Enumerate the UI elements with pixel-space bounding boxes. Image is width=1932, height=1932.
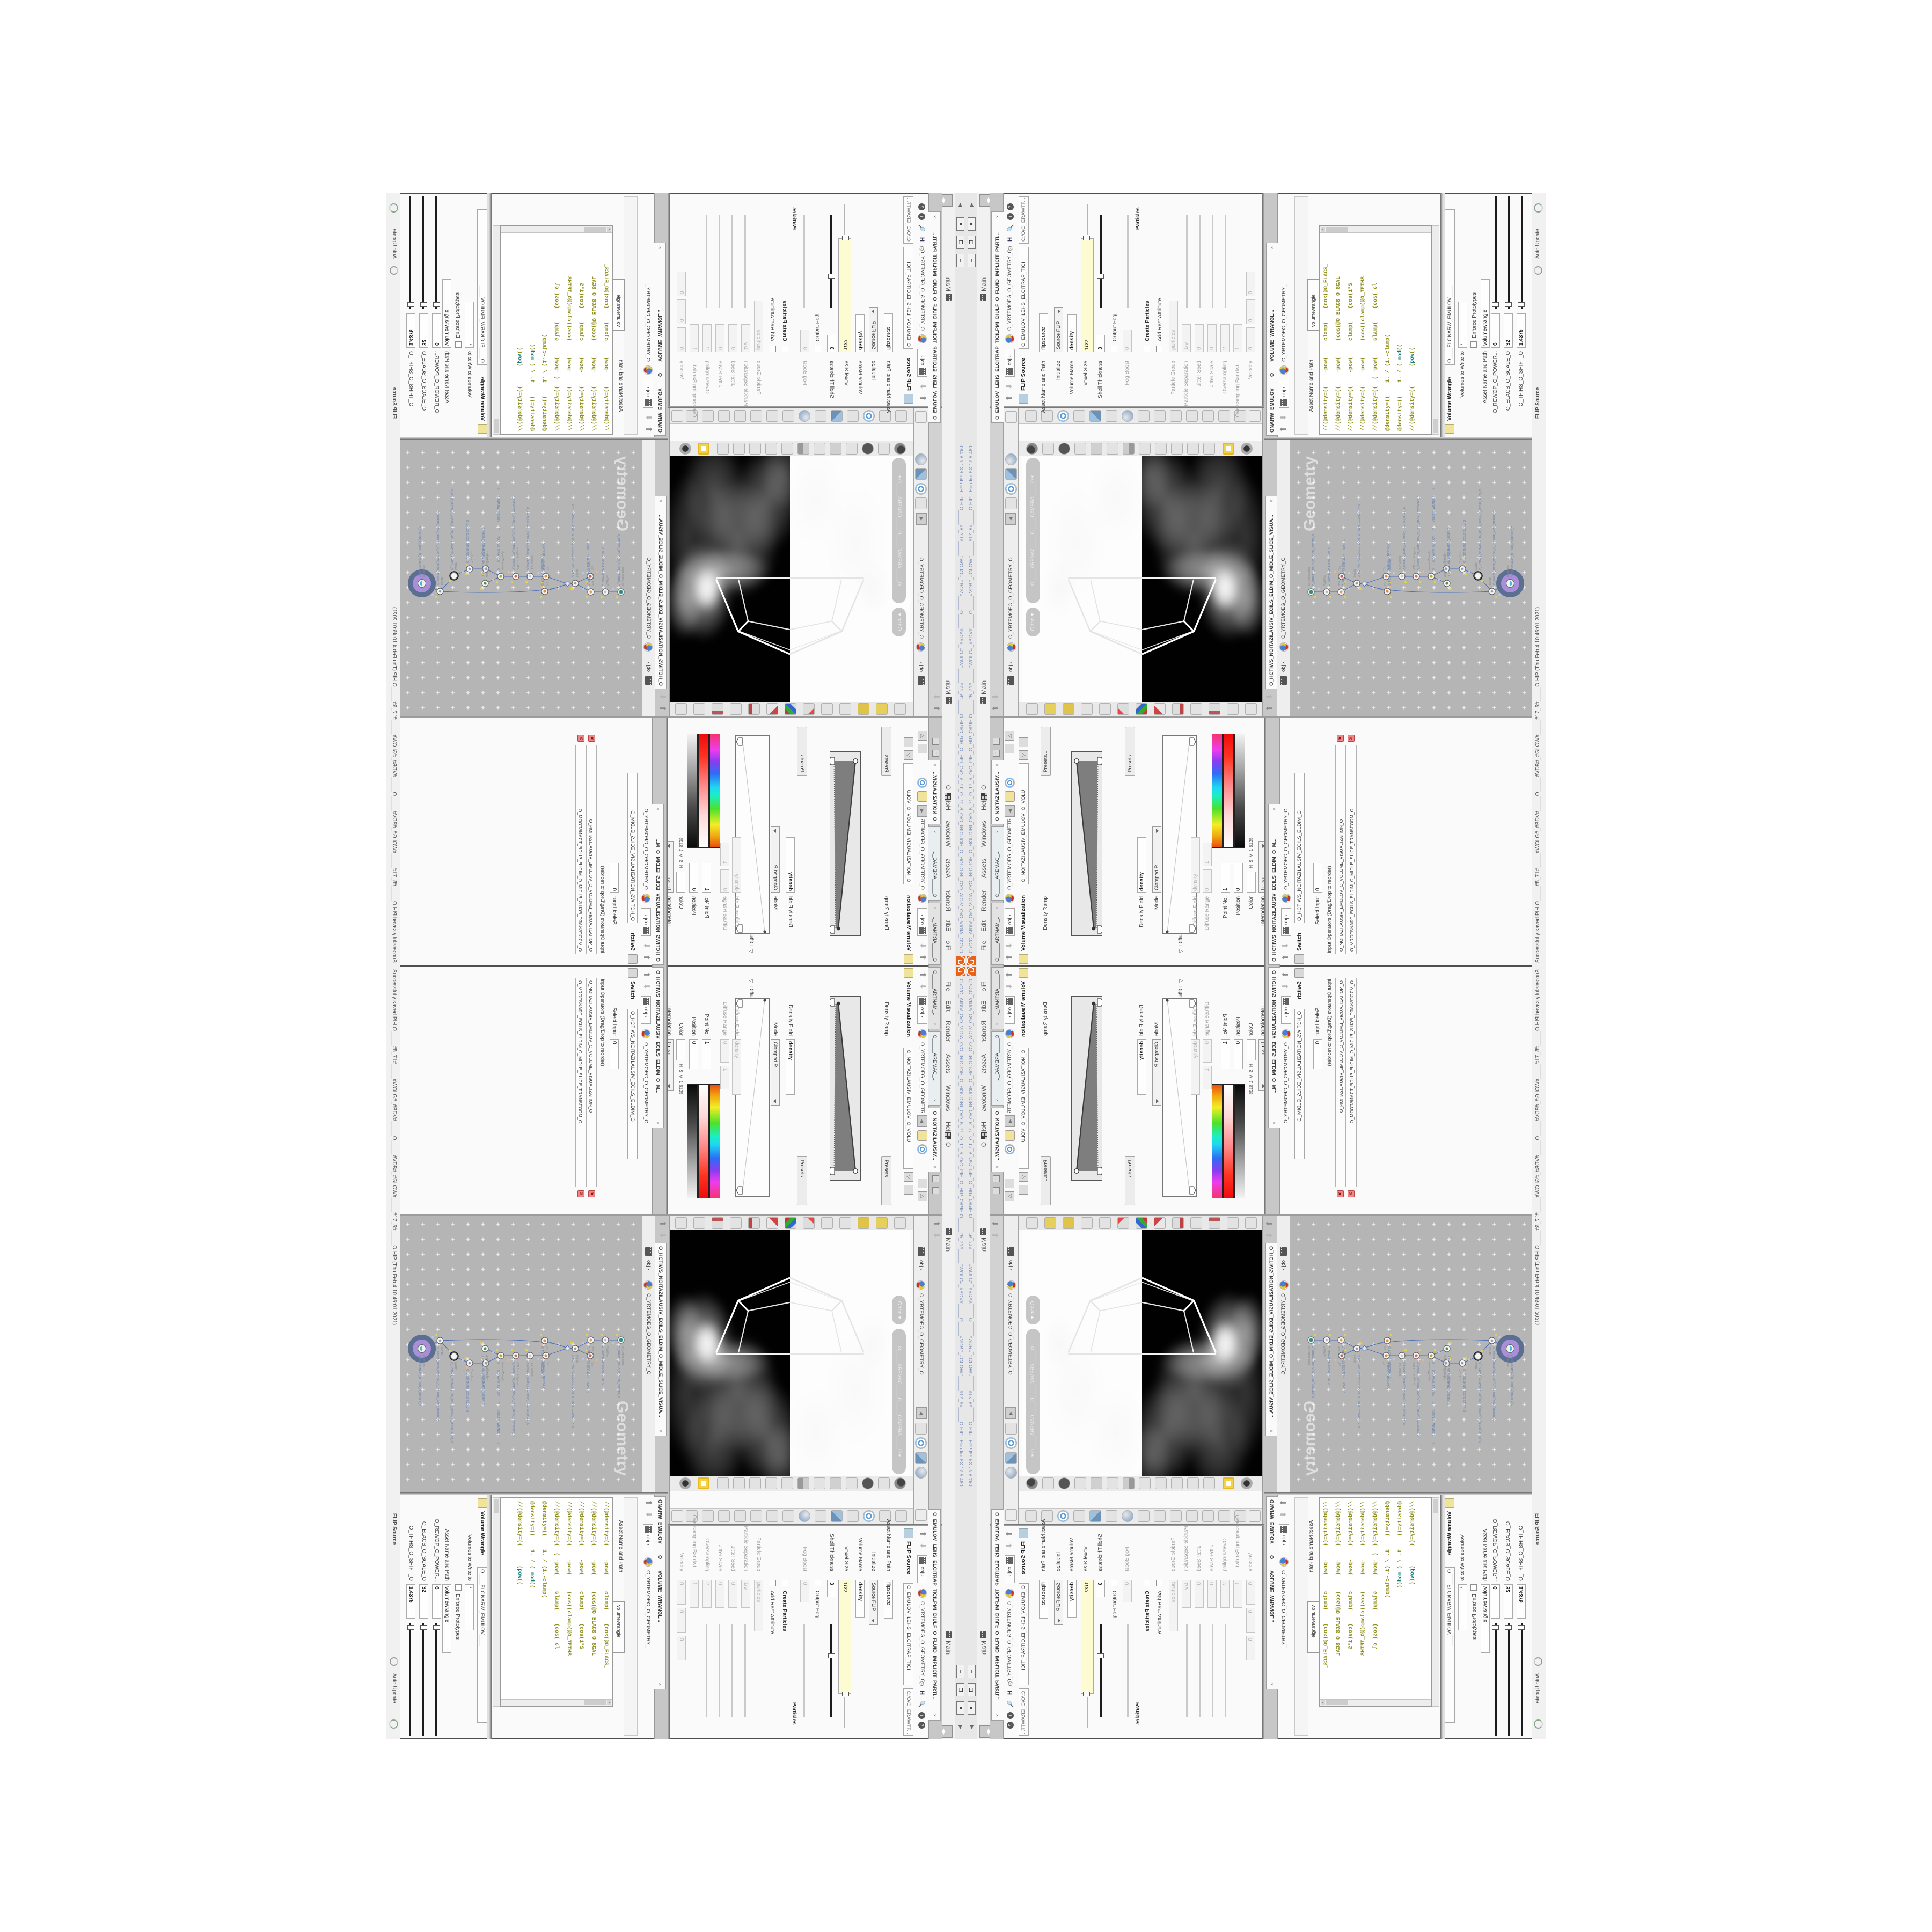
svg-text:Volume Wrangle: Volume Wrangle bbox=[501, 1362, 504, 1381]
svg-text:O_HCTIWS_NOITAZILAUSIV_ECILS_E: O_HCTIWS_NOITAZILAUSIV_ECILS_ELDIM_O_MID… bbox=[1479, 1362, 1482, 1443]
svg-text:Volume Wrangle: Volume Wrangle bbox=[1428, 551, 1431, 570]
svg-text:O_ERIWYLOP_EMARFERIW_O: O_ERIWYLOP_EMARFERIW_O bbox=[1328, 1346, 1331, 1385]
svg-text:O_MROFSNART_TLUSER_O_RESULT_O: O_MROFSNART_TLUSER_O_RESULT_O bbox=[1511, 526, 1514, 577]
svg-text:O_ELIF_BDV_TROPMI_O: O_ELIF_BDV_TROPMI_O bbox=[586, 539, 589, 570]
svg-text:O_PILC_LANRETNI_O: O_PILC_LANRETNI_O bbox=[1387, 1362, 1391, 1389]
svg-text:O_HCTIWS_YRTEMOEG_LANIF_O_FINA: O_HCTIWS_YRTEMOEG_LANIF_O_FINAL_GEOMETRY… bbox=[571, 1355, 574, 1428]
svg-text:Transform: Transform bbox=[1443, 551, 1446, 563]
svg-text:O_PILC_LANRETNI_O: O_PILC_LANRETNI_O bbox=[1387, 543, 1391, 570]
svg-text:File: File bbox=[590, 1362, 594, 1366]
svg-text:O_MROFSNART_ECILS_ELDIM_O: O_MROFSNART_ECILS_ELDIM_O bbox=[465, 1369, 469, 1412]
svg-text:O_EGREM_HTIW_EMULOV_O_VOLUME_W: O_EGREM_HTIW_EMULOV_O_VOLUME_WITH_MERGE_… bbox=[436, 1347, 439, 1421]
svg-text:Transform: Transform bbox=[470, 551, 473, 563]
svg-text:an_CubeSphere: an_CubeSphere bbox=[1308, 1346, 1311, 1366]
svg-text:Clip: Clip bbox=[545, 1346, 548, 1351]
svg-text:Switch: Switch bbox=[1353, 1355, 1357, 1363]
svg-text:O_ELIF_BDV_TROPMI_O: O_ELIF_BDV_TROPMI_O bbox=[1343, 539, 1346, 570]
svg-text:Transform: Transform bbox=[1459, 551, 1462, 563]
svg-text:VDB from Polygons: VDB from Polygons bbox=[516, 547, 519, 570]
svg-text:Volume Wrangle: Volume Wrangle bbox=[1428, 1362, 1431, 1381]
svg-text:BoolTray: BoolTray bbox=[1338, 575, 1341, 586]
svg-text:FLIP Source: FLIP Source bbox=[1399, 555, 1402, 570]
svg-text:O_SNOGYLOP_MORF_BDV_O_VDB_FROM: O_SNOGYLOP_MORF_BDV_O_VDB_FROM_POLYGONS_… bbox=[1417, 1362, 1421, 1437]
svg-text:Transform: Transform bbox=[1459, 1369, 1462, 1381]
svg-text:PolyWire: PolyWire bbox=[1323, 1346, 1327, 1357]
svg-text:Merge: Merge bbox=[1489, 577, 1492, 585]
svg-text:Merge: Merge bbox=[1489, 1347, 1492, 1355]
svg-text:VDB from Polygons: VDB from Polygons bbox=[1413, 1362, 1416, 1385]
svg-text:O_EMULOV_LEHS_ELCITRAP_TICILPM: O_EMULOV_LEHS_ELCITRAP_TICILPMI_DIULF_O bbox=[1403, 1362, 1406, 1425]
svg-text:O_MROFSNART_TLUSER_O: O_MROFSNART_TLUSER_O bbox=[481, 1369, 485, 1406]
svg-text:O_PILC_LANRETNI_O: O_PILC_LANRETNI_O bbox=[541, 1362, 545, 1389]
svg-text:O_MROFSNART_TLUSER_O_RESULT_O: O_MROFSNART_TLUSER_O_RESULT_O bbox=[1511, 1355, 1514, 1406]
svg-text:Clip: Clip bbox=[1384, 1346, 1387, 1351]
svg-text:O_ERIWYLOP_EMARFERIW_O: O_ERIWYLOP_EMARFERIW_O bbox=[601, 547, 604, 586]
svg-text:PolyWire: PolyWire bbox=[1323, 575, 1327, 586]
svg-text:File: File bbox=[1338, 1362, 1342, 1366]
svg-text:BoolTray: BoolTray bbox=[591, 1346, 594, 1357]
svg-text:Switch: Switch bbox=[1353, 569, 1357, 577]
svg-text:O_ERIWYLOP_EMARFERIW_O: O_ERIWYLOP_EMARFERIW_O bbox=[601, 1346, 604, 1385]
svg-text:Clip: Clip bbox=[1383, 1362, 1386, 1366]
svg-text:O_ELIF_BDV_TROPMI_O: O_ELIF_BDV_TROPMI_O bbox=[586, 1362, 589, 1393]
svg-text:Merge: Merge bbox=[440, 577, 443, 585]
svg-text:O____ELGNARW_EMULOV____O____VO: O____ELGNARW_EMULOV____O____VOLUME_WRANG… bbox=[1432, 1362, 1436, 1445]
svg-text:PolyWire: PolyWire bbox=[605, 575, 609, 586]
svg-text:VDB from Polygons: VDB from Polygons bbox=[1413, 547, 1416, 570]
svg-text:O_MROFSNART_TLUSER_O: O_MROFSNART_TLUSER_O bbox=[1447, 1369, 1451, 1406]
svg-text:O_EREHPS_EBUC_O_CUBE_SPHERE_O: O_EREHPS_EBUC_O_CUBE_SPHERE_O bbox=[1312, 534, 1315, 586]
svg-text:Clip: Clip bbox=[546, 566, 549, 570]
svg-text:O_HCTIWS_YRTEMOEG_LANIF_O_FINA: O_HCTIWS_YRTEMOEG_LANIF_O_FINAL_GEOMETRY… bbox=[571, 504, 574, 577]
svg-text:O_ELIF_BDV_TROPMI_O: O_ELIF_BDV_TROPMI_O bbox=[1343, 1362, 1346, 1393]
svg-text:an_CubeSphere: an_CubeSphere bbox=[1308, 566, 1311, 586]
svg-text:O_EMULOV_LEHS_ELCITRAP_TICILPM: O_EMULOV_LEHS_ELCITRAP_TICILPMI_DIULF_O bbox=[1403, 507, 1406, 570]
svg-text:an_CubeSphere: an_CubeSphere bbox=[621, 566, 624, 586]
svg-text:O_EGREM_HTIW_EMULOV_O_VOLUME_W: O_EGREM_HTIW_EMULOV_O_VOLUME_WITH_MERGE_… bbox=[436, 511, 439, 585]
svg-text:File: File bbox=[590, 566, 594, 570]
svg-text:O_HCTIWS_YRTEMOEG_LANIF_O_FINA: O_HCTIWS_YRTEMOEG_LANIF_O_FINAL_GEOMETRY… bbox=[1358, 1355, 1361, 1428]
svg-text:O_EGREM_HTIW_EMULOV_O_VOLUME_W: O_EGREM_HTIW_EMULOV_O_VOLUME_WITH_MERGE_… bbox=[1493, 511, 1496, 585]
svg-text:O_MROFSNART_ECILS_ELDIM_O: O_MROFSNART_ECILS_ELDIM_O bbox=[465, 520, 469, 563]
svg-text:O_MROFSNART_TLUSER_O_RESULT_O: O_MROFSNART_TLUSER_O_RESULT_O bbox=[418, 1355, 421, 1406]
svg-text:Transform: Transform bbox=[486, 551, 489, 563]
svg-text:O_HCTIWS_NOITAZILAUSIV_ECILS_E: O_HCTIWS_NOITAZILAUSIV_ECILS_ELDIM_O_MID… bbox=[1479, 489, 1482, 570]
svg-text:Transform: Transform bbox=[470, 1369, 473, 1381]
svg-text:BoolTray: BoolTray bbox=[1338, 1346, 1341, 1357]
svg-text:O_EMULOV_LEHS_ELCITRAP_TICILPM: O_EMULOV_LEHS_ELCITRAP_TICILPMI_DIULF_O bbox=[526, 1362, 529, 1425]
svg-text:PolyWire: PolyWire bbox=[605, 1346, 609, 1357]
svg-text:Clip: Clip bbox=[545, 581, 548, 586]
svg-text:O_EREHPS_EBUC_O_CUBE_SPHERE_O: O_EREHPS_EBUC_O_CUBE_SPHERE_O bbox=[1312, 1346, 1315, 1398]
svg-text:Transform: Transform bbox=[1507, 1355, 1510, 1367]
svg-text:O_EREHPS_EBUC_O_CUBE_SPHERE_O: O_EREHPS_EBUC_O_CUBE_SPHERE_O bbox=[617, 1346, 620, 1398]
svg-text:Clip: Clip bbox=[1383, 566, 1386, 570]
svg-text:File: File bbox=[1338, 566, 1342, 570]
svg-text:Switch: Switch bbox=[1475, 562, 1478, 570]
svg-text:O_MROFSNART_ECILS_ELDIM_O: O_MROFSNART_ECILS_ELDIM_O bbox=[1463, 520, 1467, 563]
svg-text:O_EGREM_HTIW_EMULOV_O_VOLUME_W: O_EGREM_HTIW_EMULOV_O_VOLUME_WITH_MERGE_… bbox=[1493, 1347, 1496, 1421]
svg-text:O_HCTIWS_YRTEMOEG_LANIF_O_FINA: O_HCTIWS_YRTEMOEG_LANIF_O_FINAL_GEOMETRY… bbox=[1358, 504, 1361, 577]
svg-text:Clip: Clip bbox=[1384, 581, 1387, 586]
svg-text:O____ELGNARW_EMULOV____O____VO: O____ELGNARW_EMULOV____O____VOLUME_WRANG… bbox=[496, 1362, 500, 1445]
svg-text:O_HCTIWS_NOITAZILAUSIV_ECILS_E: O_HCTIWS_NOITAZILAUSIV_ECILS_ELDIM_O_MID… bbox=[450, 1362, 453, 1443]
svg-text:O_PILC_LANRETNI_O: O_PILC_LANRETNI_O bbox=[541, 543, 545, 570]
svg-text:BoolTray: BoolTray bbox=[591, 575, 594, 586]
svg-text:O_SNOGYLOP_MORF_BDV_O_VDB_FROM: O_SNOGYLOP_MORF_BDV_O_VDB_FROM_POLYGONS_… bbox=[511, 1362, 515, 1437]
svg-text:Switch: Switch bbox=[454, 1362, 457, 1370]
svg-text:Transform: Transform bbox=[422, 565, 425, 577]
svg-text:Switch: Switch bbox=[575, 1355, 579, 1363]
svg-text:O_ERIWYLOP_EMARFERIW_O: O_ERIWYLOP_EMARFERIW_O bbox=[1328, 547, 1331, 586]
svg-text:an_CubeSphere: an_CubeSphere bbox=[621, 1346, 624, 1366]
svg-text:O_SNOGYLOP_MORF_BDV_O_VDB_FROM: O_SNOGYLOP_MORF_BDV_O_VDB_FROM_POLYGONS_… bbox=[1417, 495, 1421, 570]
svg-text:FLIP Source: FLIP Source bbox=[530, 1362, 533, 1377]
svg-text:FLIP Source: FLIP Source bbox=[1399, 1362, 1402, 1377]
svg-text:O_SNOGYLOP_MORF_BDV_O_VDB_FROM: O_SNOGYLOP_MORF_BDV_O_VDB_FROM_POLYGONS_… bbox=[511, 495, 515, 570]
svg-text:Transform: Transform bbox=[486, 1369, 489, 1381]
svg-text:O_MROFSNART_ECILS_ELDIM_O: O_MROFSNART_ECILS_ELDIM_O bbox=[1463, 1369, 1467, 1412]
svg-text:O_EMULOV_LEHS_ELCITRAP_TICILPM: O_EMULOV_LEHS_ELCITRAP_TICILPMI_DIULF_O bbox=[526, 507, 529, 570]
svg-text:VDB from Polygons: VDB from Polygons bbox=[516, 1362, 519, 1385]
svg-text:O_HCTIWS_NOITAZILAUSIV_ECILS_E: O_HCTIWS_NOITAZILAUSIV_ECILS_ELDIM_O_MID… bbox=[450, 489, 453, 570]
svg-text:O____ELGNARW_EMULOV____O____VO: O____ELGNARW_EMULOV____O____VOLUME_WRANG… bbox=[1432, 487, 1436, 570]
svg-text:O_MROFSNART_TLUSER_O_RESULT_O: O_MROFSNART_TLUSER_O_RESULT_O bbox=[418, 526, 421, 577]
svg-text:O_MROFSNART_TLUSER_O: O_MROFSNART_TLUSER_O bbox=[1447, 526, 1451, 563]
svg-text:Switch: Switch bbox=[454, 562, 457, 570]
svg-text:O____ELGNARW_EMULOV____O____VO: O____ELGNARW_EMULOV____O____VOLUME_WRANG… bbox=[496, 487, 500, 570]
svg-text:O_EREHPS_EBUC_O_CUBE_SPHERE_O: O_EREHPS_EBUC_O_CUBE_SPHERE_O bbox=[617, 534, 620, 586]
svg-text:Clip: Clip bbox=[546, 1362, 549, 1366]
svg-text:FLIP Source: FLIP Source bbox=[530, 555, 533, 570]
svg-text:Switch: Switch bbox=[1475, 1362, 1478, 1370]
svg-text:Switch: Switch bbox=[575, 569, 579, 577]
svg-text:Merge: Merge bbox=[440, 1347, 443, 1355]
svg-text:Transform: Transform bbox=[422, 1355, 425, 1367]
svg-text:Transform: Transform bbox=[1443, 1369, 1446, 1381]
svg-text:Volume Wrangle: Volume Wrangle bbox=[501, 551, 504, 570]
svg-text:Transform: Transform bbox=[1507, 565, 1510, 577]
svg-text:O_MROFSNART_TLUSER_O: O_MROFSNART_TLUSER_O bbox=[481, 526, 485, 563]
